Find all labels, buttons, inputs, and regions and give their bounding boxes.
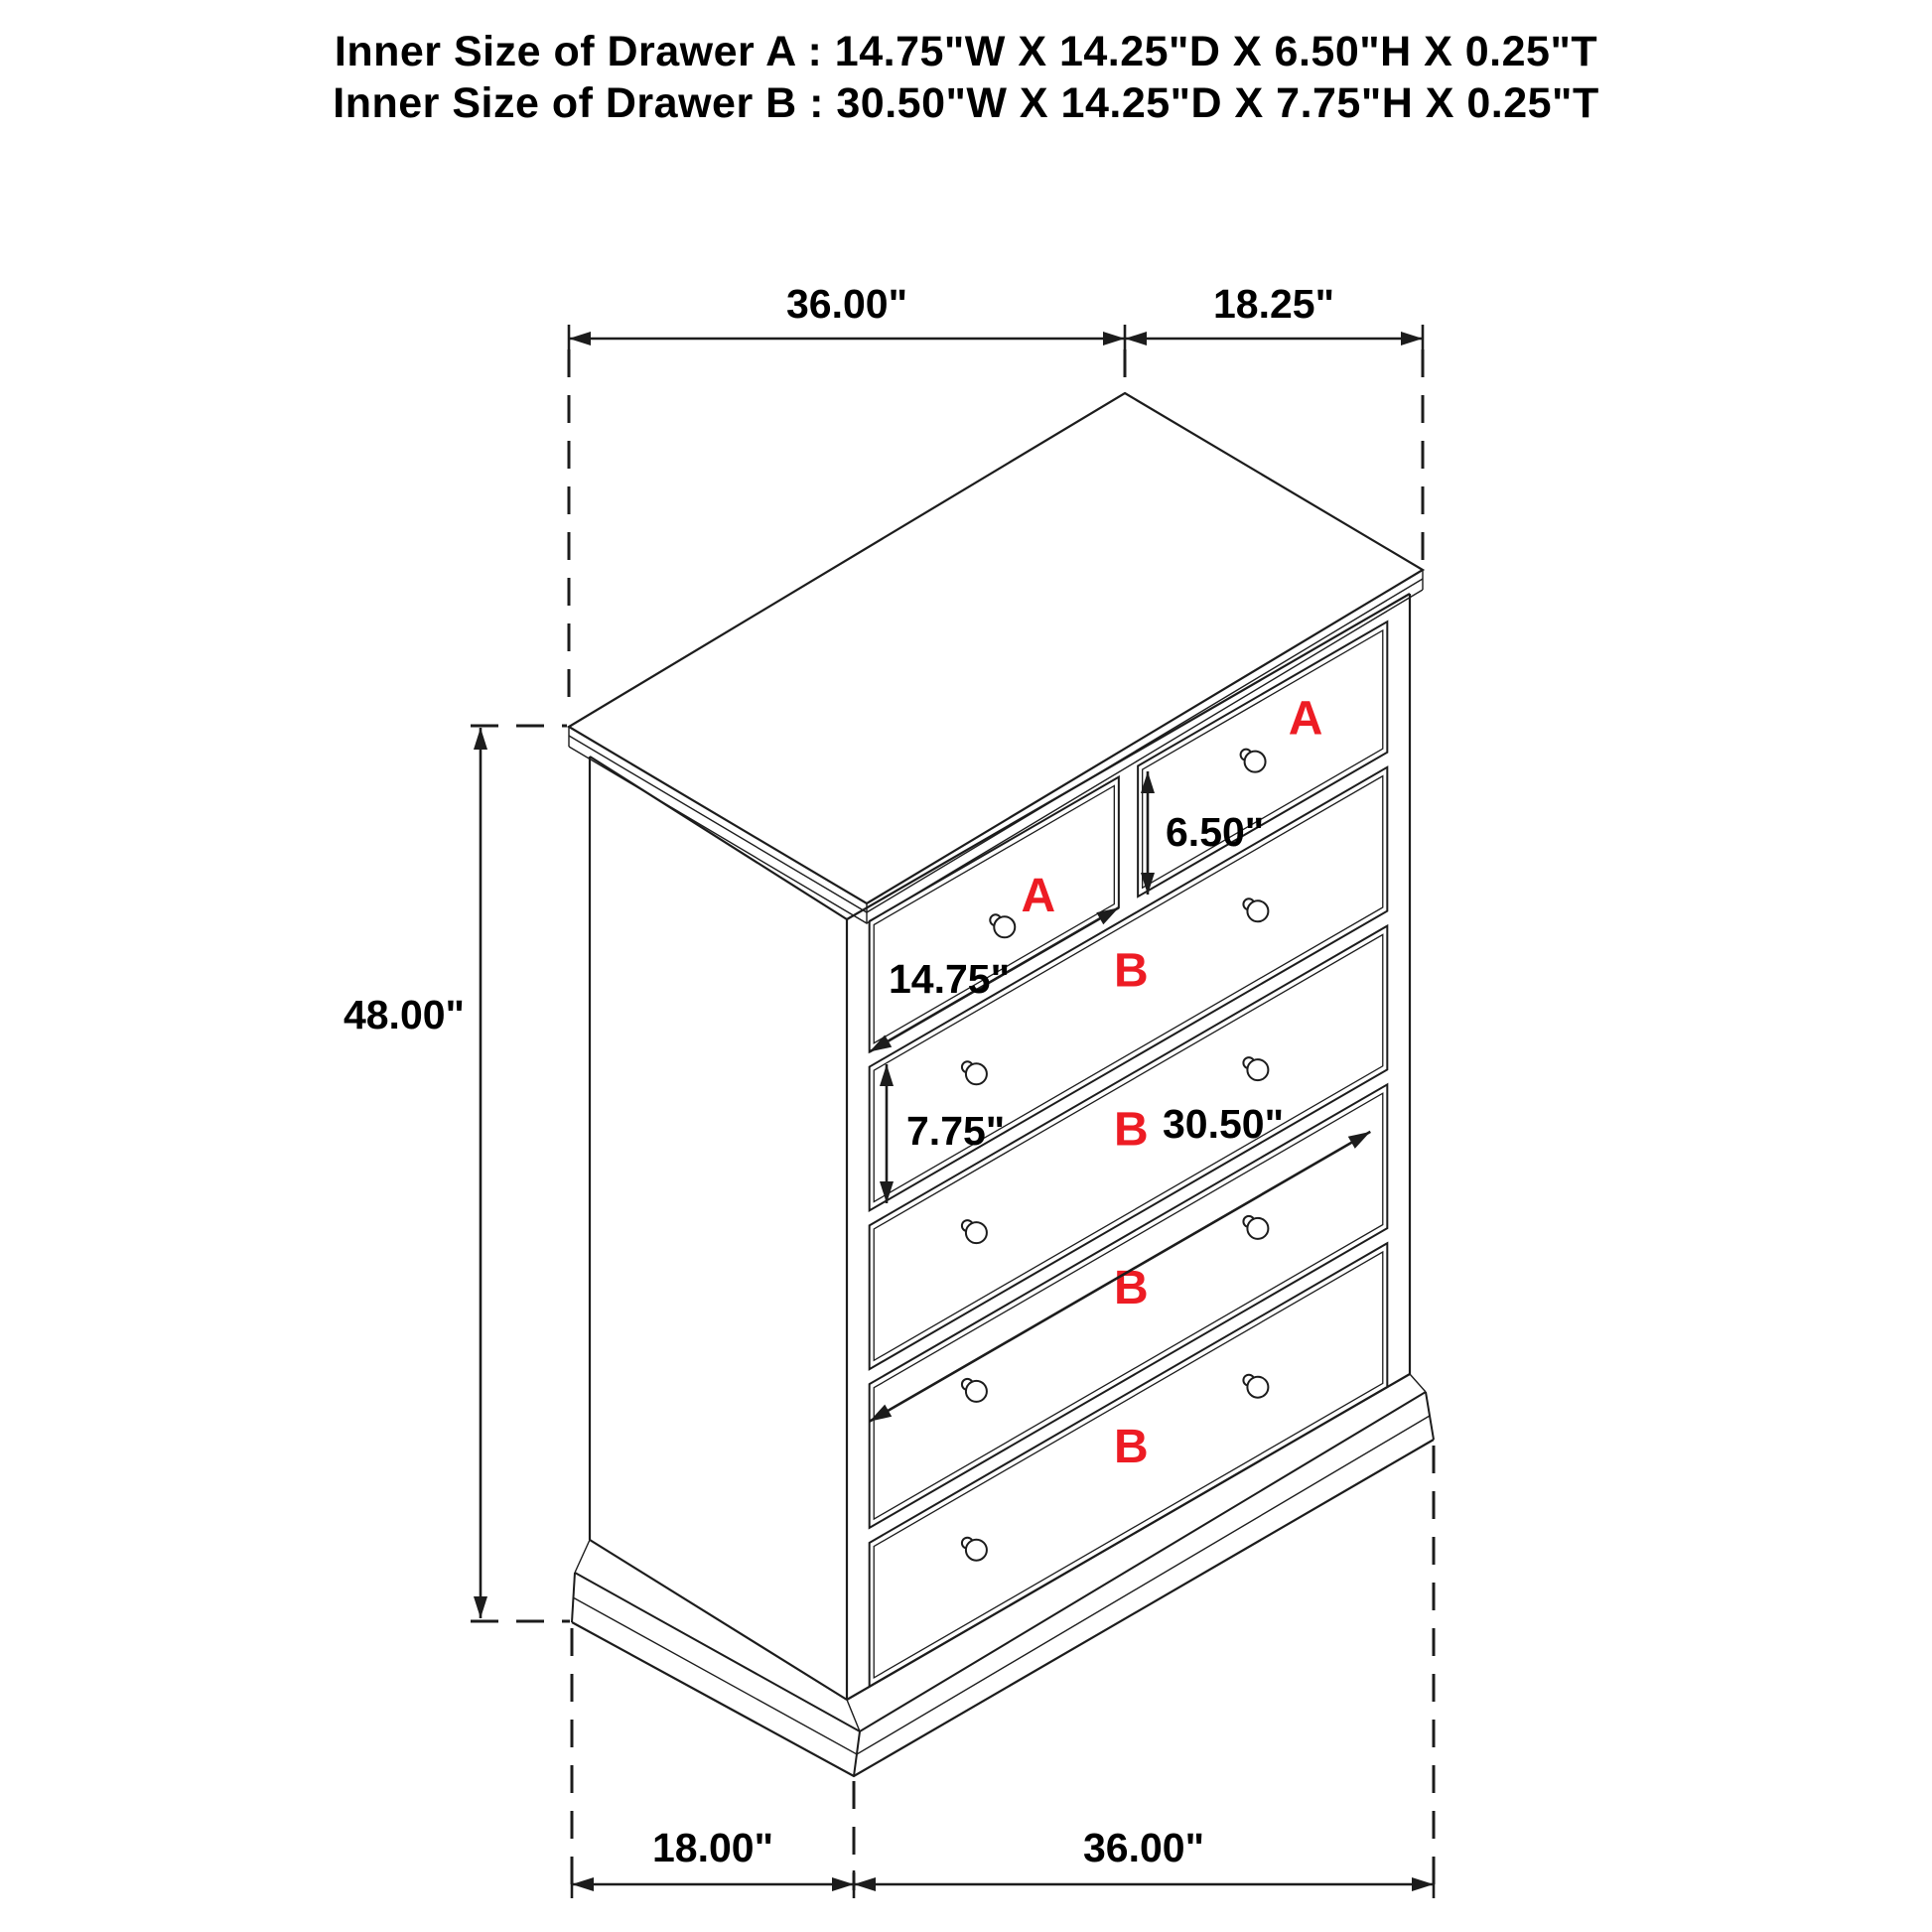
drawer-knob bbox=[1243, 1216, 1268, 1239]
dim-label-drawer-b-height: 7.75" bbox=[906, 1108, 1005, 1154]
arrowhead bbox=[880, 1064, 894, 1086]
dim-label-drawer-a-height: 6.50" bbox=[1166, 809, 1264, 855]
drawer-letter-label: A bbox=[1289, 693, 1323, 746]
side-panel bbox=[590, 757, 847, 1700]
arrowhead bbox=[1401, 332, 1423, 345]
arrowhead bbox=[1125, 332, 1147, 345]
dim-top-width: 36.00" bbox=[569, 281, 1125, 713]
knob-face bbox=[1245, 752, 1266, 772]
base-left-corner bbox=[572, 1573, 575, 1622]
dimension-line bbox=[870, 1132, 1371, 1422]
arrowhead bbox=[870, 1035, 893, 1051]
side-top-edge bbox=[590, 757, 847, 919]
dim-label-top-width: 36.00" bbox=[786, 281, 907, 327]
drawer-a-left: A bbox=[870, 777, 1119, 1052]
drawer-letter-label: B bbox=[1114, 1103, 1149, 1156]
drawer-a-right: A bbox=[1138, 621, 1387, 897]
dim-height: 48.00" bbox=[344, 726, 570, 1621]
dim-label-height: 48.00" bbox=[344, 992, 465, 1037]
base-right-corner bbox=[1426, 1392, 1434, 1440]
dim-label-floor-width: 36.00" bbox=[1083, 1825, 1204, 1870]
drawer-knob bbox=[1241, 750, 1266, 772]
knob-face bbox=[966, 1381, 987, 1402]
drawer-knob bbox=[1243, 898, 1268, 921]
arrowhead bbox=[832, 1877, 854, 1891]
knob-face bbox=[994, 916, 1015, 937]
arrowhead bbox=[1103, 332, 1125, 345]
knob-face bbox=[1247, 1377, 1268, 1398]
arrowhead bbox=[854, 1877, 876, 1891]
dim-label-drawer-b-width: 30.50" bbox=[1163, 1101, 1284, 1147]
drawer-knob bbox=[962, 1379, 987, 1402]
drawer-knob bbox=[1243, 1057, 1268, 1080]
arrowhead bbox=[572, 1877, 594, 1891]
drawer-knob bbox=[962, 1061, 987, 1084]
knob-face bbox=[1247, 900, 1268, 921]
arrowhead bbox=[1412, 1877, 1434, 1891]
dim-label-drawer-a-width: 14.75" bbox=[889, 956, 1010, 1002]
dim-label-floor-depth: 18.00" bbox=[652, 1825, 773, 1870]
drawer-knob bbox=[962, 1220, 987, 1243]
drawer-knob bbox=[990, 914, 1015, 937]
drawer-letter-label: B bbox=[1114, 1421, 1149, 1473]
side-bottom-edge bbox=[590, 1540, 847, 1700]
arrowhead bbox=[474, 728, 487, 750]
dim-label-top-depth: 18.25" bbox=[1213, 281, 1334, 327]
drawer-letter-label: A bbox=[1021, 870, 1055, 922]
arrowhead bbox=[569, 332, 591, 345]
drawer-knob bbox=[1243, 1375, 1268, 1398]
front-top-edge bbox=[847, 594, 1410, 919]
arrowhead bbox=[474, 1596, 487, 1618]
dim-floor-width: 36.00" bbox=[854, 1446, 1434, 1898]
drawer-letter-label: B bbox=[1114, 945, 1149, 998]
knob-face bbox=[1247, 1059, 1268, 1080]
top-slab bbox=[569, 393, 1423, 923]
arrowhead bbox=[1096, 907, 1119, 924]
base-cove-front bbox=[847, 1700, 860, 1731]
base-top-edge bbox=[575, 1392, 1426, 1731]
dimension-diagram-page: Inner Size of Drawer A : 14.75"W X 14.25… bbox=[0, 0, 1932, 1932]
arrowhead bbox=[870, 1405, 893, 1422]
top-edge-bevel bbox=[569, 590, 1423, 923]
chest-isometric-drawing: AABBBB36.00"18.25"48.00"6.50"14.75"7.75"… bbox=[0, 0, 1932, 1932]
base-cove-left bbox=[575, 1540, 590, 1573]
top-edge-bevel bbox=[569, 579, 1423, 912]
knob-face bbox=[1247, 1218, 1268, 1239]
dim-drawer-a-height: 6.50" bbox=[1141, 771, 1264, 895]
dim-floor-depth: 18.00" bbox=[572, 1628, 854, 1898]
knob-face bbox=[966, 1540, 987, 1561]
drawer-knob bbox=[962, 1538, 987, 1561]
knob-face bbox=[966, 1222, 987, 1243]
base-cove-right bbox=[1410, 1374, 1426, 1392]
arrowhead bbox=[1348, 1132, 1371, 1149]
knob-face bbox=[966, 1063, 987, 1084]
